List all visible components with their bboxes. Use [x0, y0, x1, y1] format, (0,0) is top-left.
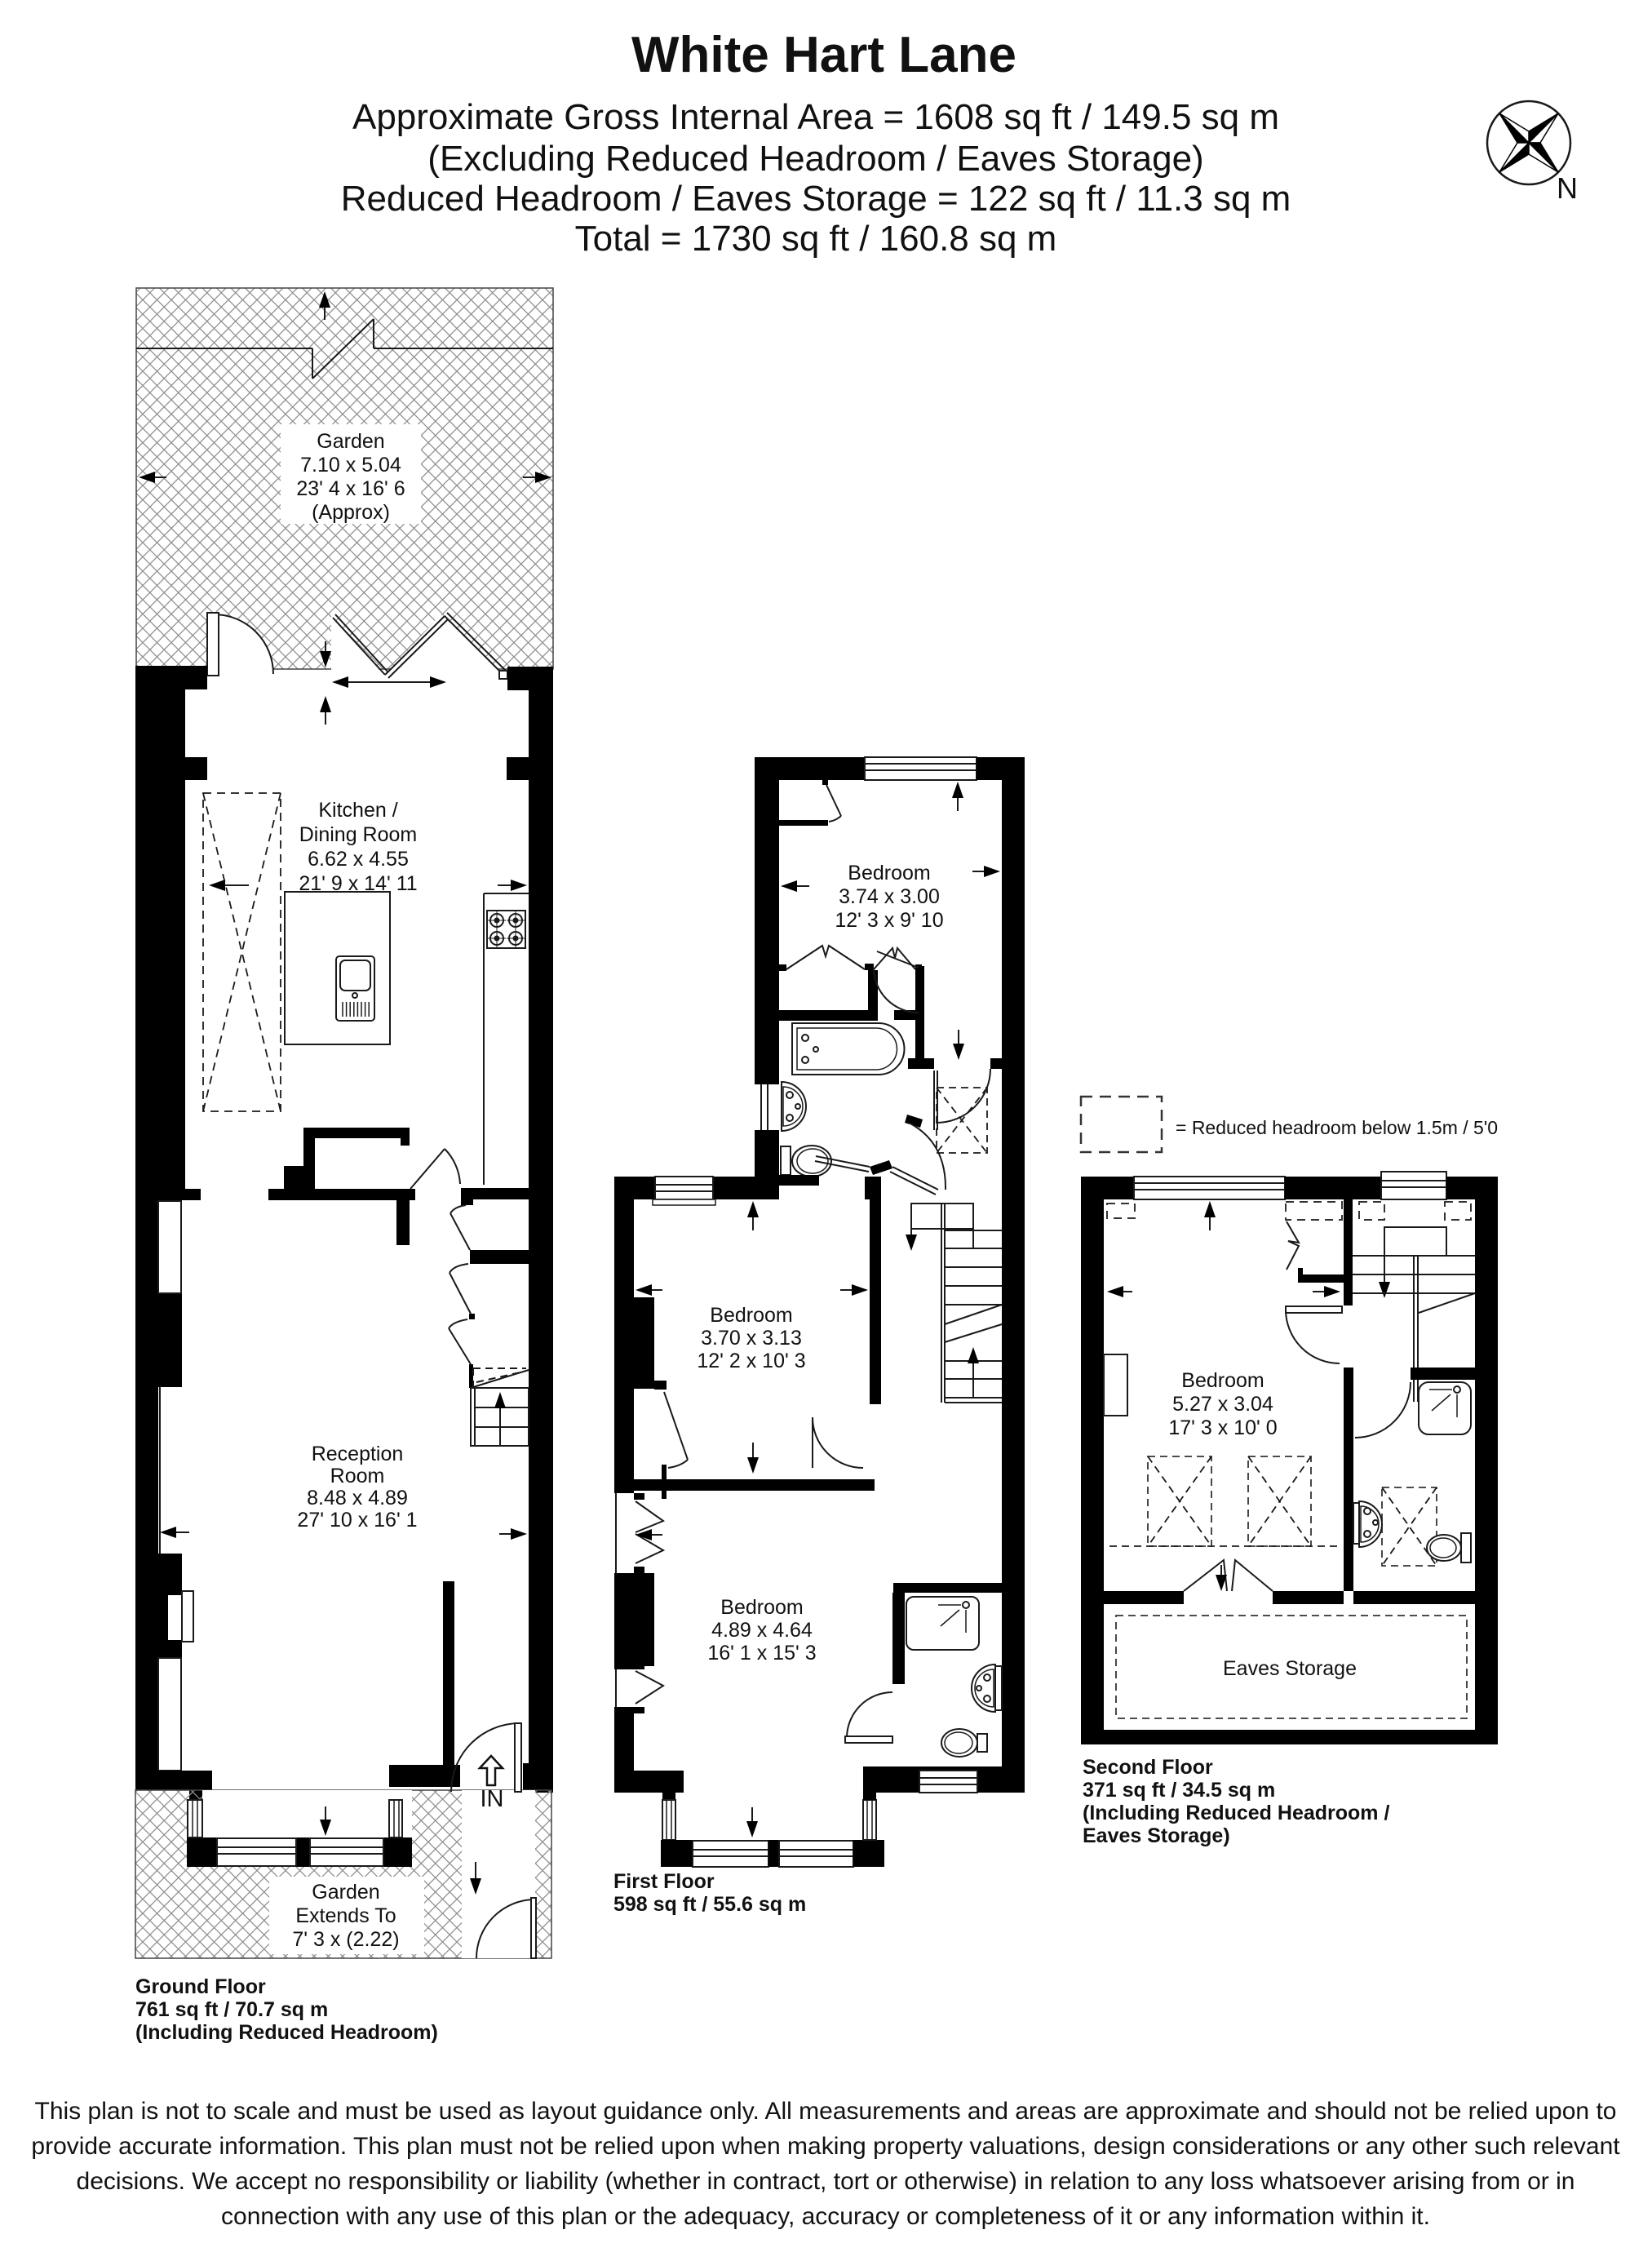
svg-text:Garden: Garden: [312, 1881, 379, 1904]
svg-text:Dining Room: Dining Room: [299, 823, 418, 846]
svg-text:3.70 x 3.13: 3.70 x 3.13: [701, 1327, 802, 1350]
svg-text:(Approx): (Approx): [312, 501, 390, 524]
svg-text:connection with any use of thi: connection with any use of this plan or …: [221, 2203, 1430, 2230]
svg-text:Bedroom: Bedroom: [720, 1596, 803, 1619]
svg-text:First Floor: First Floor: [613, 1870, 715, 1893]
svg-text:N: N: [1557, 171, 1578, 205]
svg-text:23' 4 x 16' 6: 23' 4 x 16' 6: [296, 477, 405, 500]
svg-text:Ground Floor: Ground Floor: [135, 1975, 266, 1998]
svg-text:12' 3 x 9' 10: 12' 3 x 9' 10: [835, 909, 943, 932]
svg-text:7' 3 x (2.22): 7' 3 x (2.22): [292, 1928, 399, 1951]
svg-text:4.89 x 4.64: 4.89 x 4.64: [711, 1619, 813, 1642]
svg-text:(Including Reduced Headroom /: (Including Reduced Headroom /: [1083, 1802, 1389, 1824]
svg-text:12' 2 x 10' 3: 12' 2 x 10' 3: [697, 1350, 805, 1372]
svg-text:17' 3 x 10' 0: 17' 3 x 10' 0: [1168, 1416, 1277, 1439]
svg-text:White Hart Lane: White Hart Lane: [631, 27, 1016, 83]
svg-text:Extends To: Extends To: [295, 1904, 396, 1927]
svg-text:= Reduced headroom below 1.5m: = Reduced headroom below 1.5m / 5'0: [1176, 1117, 1498, 1138]
svg-text:Reception: Reception: [312, 1443, 404, 1465]
svg-text:Eaves Storage: Eaves Storage: [1223, 1657, 1357, 1680]
svg-text:Eaves Storage): Eaves Storage): [1083, 1824, 1230, 1847]
svg-text:Room: Room: [330, 1465, 385, 1487]
svg-text:3.74 x 3.00: 3.74 x 3.00: [839, 885, 940, 908]
svg-text:Total = 1730 sq ft / 160.8 sq: Total = 1730 sq ft / 160.8 sq m: [575, 219, 1057, 259]
svg-text:(Including Reduced Headroom): (Including Reduced Headroom): [135, 2021, 438, 2044]
svg-text:27' 10 x 16' 1: 27' 10 x 16' 1: [297, 1509, 417, 1532]
svg-text:Garden: Garden: [317, 430, 384, 453]
svg-text:16' 1 x 15' 3: 16' 1 x 15' 3: [707, 1642, 816, 1665]
svg-text:761 sq ft / 70.7 sq m: 761 sq ft / 70.7 sq m: [135, 1998, 328, 2021]
svg-text:5.27 x 3.04: 5.27 x 3.04: [1172, 1393, 1273, 1416]
svg-text:IN: IN: [481, 1786, 504, 1812]
svg-text:7.10 x 5.04: 7.10 x 5.04: [300, 454, 401, 477]
svg-text:(Excluding Reduced Headroom /: (Excluding Reduced Headroom / Eaves Stor…: [427, 139, 1203, 179]
svg-text:provide accurate information.: provide accurate information. This plan …: [31, 2133, 1620, 2160]
svg-text:598 sq ft / 55.6 sq m: 598 sq ft / 55.6 sq m: [613, 1893, 806, 1916]
svg-text:Second Floor: Second Floor: [1083, 1756, 1213, 1779]
svg-text:21' 9 x 14' 11: 21' 9 x 14' 11: [299, 872, 417, 895]
svg-text:decisions. We accept no respon: decisions. We accept no responsibility o…: [77, 2168, 1575, 2195]
svg-text:Approximate Gross Internal Are: Approximate Gross Internal Area = 1608 s…: [352, 97, 1279, 137]
svg-text:Bedroom: Bedroom: [710, 1304, 792, 1327]
svg-text:Kitchen /: Kitchen /: [318, 799, 397, 822]
svg-text:This plan is not to scale and: This plan is not to scale and must be us…: [35, 2098, 1617, 2125]
svg-text:Bedroom: Bedroom: [1181, 1369, 1264, 1392]
svg-text:Reduced Headroom / Eaves Stora: Reduced Headroom / Eaves Storage = 122 s…: [341, 179, 1291, 219]
svg-text:Bedroom: Bedroom: [848, 862, 930, 884]
svg-text:6.62 x 4.55: 6.62 x 4.55: [308, 848, 409, 871]
svg-text:371 sq ft / 34.5 sq m: 371 sq ft / 34.5 sq m: [1083, 1779, 1275, 1802]
svg-text:8.48 x 4.89: 8.48 x 4.89: [307, 1487, 408, 1509]
